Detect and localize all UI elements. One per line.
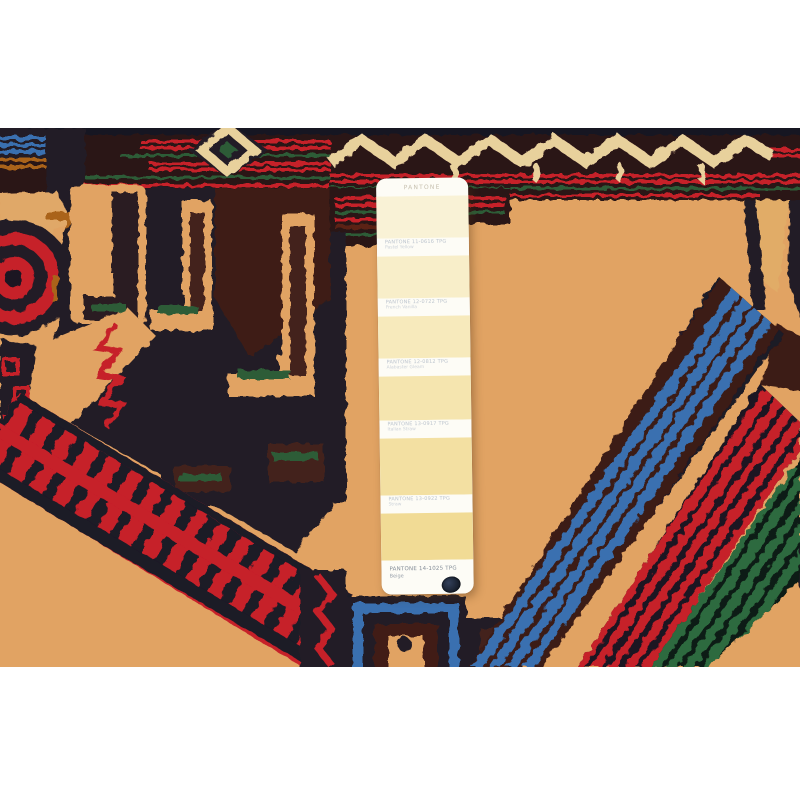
- card-swatch: [381, 512, 474, 560]
- card-swatch: [379, 375, 472, 420]
- swatch-name: Alabaster Gleam: [387, 365, 471, 371]
- card-swatch-label: PANTONE 12-0722 TPG French Vanilla: [378, 297, 470, 316]
- card-swatch-label: PANTONE 13-0922 TPG Straw: [380, 494, 472, 513]
- card-footer: PANTONE 14-1025 TPG Beige: [381, 559, 473, 594]
- swatch-name: French Vanilla: [386, 305, 470, 311]
- card-swatch: [380, 437, 473, 495]
- card-swatch: [377, 255, 470, 298]
- screenshot-root: PANTONE PANTONE 11-0616 TPG Pastel Yello…: [0, 0, 800, 800]
- card-swatch-label: PANTONE 12-0812 TPG Alabaster Gleam: [379, 357, 471, 376]
- swatch-name: Italian Straw: [387, 427, 471, 433]
- swatch-name: Pastel Yellow: [385, 245, 469, 251]
- swatch-name: Straw: [389, 502, 473, 508]
- card-swatch: [376, 195, 469, 238]
- pantone-color-card: PANTONE PANTONE 11-0616 TPG Pastel Yello…: [376, 177, 474, 594]
- card-swatch-label: PANTONE 11-0616 TPG Pastel Yellow: [377, 237, 469, 256]
- greek-key-square: [346, 596, 466, 667]
- pantone-card-brand: PANTONE: [376, 177, 468, 196]
- card-swatch-label: PANTONE 13-0917 TPG Italian Straw: [379, 419, 471, 438]
- rug-photograph: PANTONE PANTONE 11-0616 TPG Pastel Yello…: [0, 128, 800, 667]
- card-swatch: [378, 315, 471, 358]
- swatch-name: Beige: [390, 572, 474, 579]
